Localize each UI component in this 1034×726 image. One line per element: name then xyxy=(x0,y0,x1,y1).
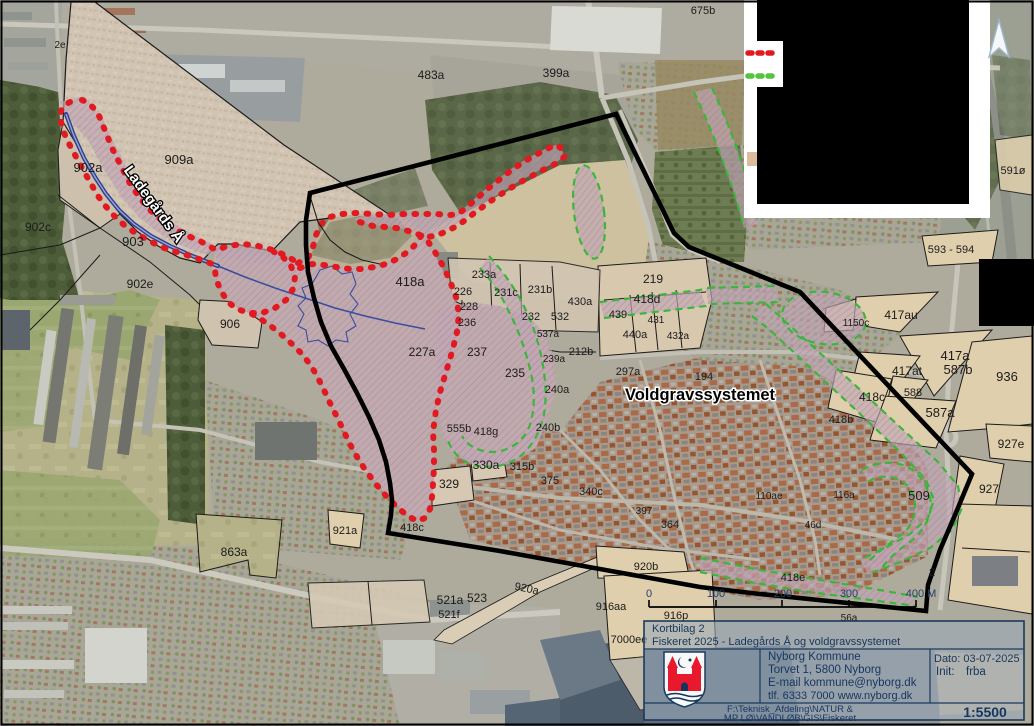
svg-text:236: 236 xyxy=(458,317,476,329)
svg-text:E-mail kommune@nyborg.dk: E-mail kommune@nyborg.dk xyxy=(768,677,917,689)
svg-text:418c: 418c xyxy=(859,390,885,404)
svg-text:440a: 440a xyxy=(623,329,648,341)
svg-text:417at: 417at xyxy=(892,364,923,378)
svg-text:521a: 521a xyxy=(437,593,464,607)
svg-text:235: 235 xyxy=(505,366,525,380)
svg-text:Fiskeret 2025 - Ladegårds Å og: Fiskeret 2025 - Ladegårds Å og voldgravs… xyxy=(652,635,900,648)
svg-text:523: 523 xyxy=(467,591,487,605)
svg-text:297a: 297a xyxy=(616,366,641,378)
svg-text:906: 906 xyxy=(220,317,240,331)
svg-text:587a: 587a xyxy=(926,405,956,420)
svg-text:397: 397 xyxy=(636,506,653,517)
svg-text:46d: 46d xyxy=(805,520,822,531)
svg-text:227a: 227a xyxy=(409,345,436,359)
svg-text:239a: 239a xyxy=(543,354,566,365)
svg-text:Voldgravssystemet: Voldgravssystemet xyxy=(625,386,776,404)
svg-text:frba: frba xyxy=(966,666,986,678)
svg-text:212b: 212b xyxy=(569,346,593,358)
svg-text:232: 232 xyxy=(522,311,540,323)
svg-text:418d: 418d xyxy=(634,292,661,306)
svg-text:1:5500: 1:5500 xyxy=(963,704,1007,720)
svg-text:194: 194 xyxy=(695,371,713,383)
svg-text:240b: 240b xyxy=(536,422,560,434)
svg-text:Torvet 1, 5800 Nyborg: Torvet 1, 5800 Nyborg xyxy=(768,664,881,676)
svg-text:417au: 417au xyxy=(884,308,917,322)
svg-text:2e: 2e xyxy=(54,40,66,51)
svg-text:Nyborg Kommune: Nyborg Kommune xyxy=(768,651,861,663)
svg-text:927: 927 xyxy=(979,482,999,496)
svg-text:588: 588 xyxy=(904,387,922,399)
svg-text:116a: 116a xyxy=(833,490,855,501)
svg-text:0: 0 xyxy=(646,588,652,600)
svg-text:110ae: 110ae xyxy=(755,491,783,502)
svg-text:2: 2 xyxy=(929,567,935,579)
svg-text:593 - 594: 593 - 594 xyxy=(928,244,974,256)
svg-text:418c: 418c xyxy=(400,522,424,534)
svg-text:587b: 587b xyxy=(944,362,973,377)
svg-text:431: 431 xyxy=(648,315,665,326)
svg-text:228: 228 xyxy=(460,301,478,313)
svg-text:329: 329 xyxy=(439,477,459,491)
svg-text:315b: 315b xyxy=(510,461,534,473)
svg-text:375: 375 xyxy=(541,475,559,487)
svg-text:219: 219 xyxy=(643,272,663,286)
svg-text:237: 237 xyxy=(467,345,487,359)
svg-text:Init:: Init: xyxy=(936,666,955,678)
svg-text:430a: 430a xyxy=(568,296,593,308)
svg-text:418a: 418a xyxy=(396,274,426,289)
svg-text:231b: 231b xyxy=(528,284,552,296)
svg-text:902e: 902e xyxy=(127,277,154,291)
svg-text:916aa: 916aa xyxy=(596,601,627,613)
svg-text:7000ee: 7000ee xyxy=(611,634,648,646)
svg-text:921a: 921a xyxy=(333,525,358,537)
svg-text:200: 200 xyxy=(774,588,792,600)
svg-text:532: 532 xyxy=(551,311,569,323)
svg-text:MP LØ\VANDLØB\GIS\Fiskeret: MP LØ\VANDLØB\GIS\Fiskeret xyxy=(724,713,857,724)
svg-text:240a: 240a xyxy=(545,384,570,396)
svg-text:537a: 537a xyxy=(537,329,560,340)
svg-text:432a: 432a xyxy=(667,331,690,342)
svg-text:483a: 483a xyxy=(418,68,445,82)
svg-text:330a: 330a xyxy=(473,458,500,472)
svg-text:902c: 902c xyxy=(25,220,51,234)
svg-text:591ø: 591ø xyxy=(1000,165,1025,177)
svg-text:920b: 920b xyxy=(634,561,658,573)
svg-text:233a: 233a xyxy=(472,269,497,281)
svg-text:927e: 927e xyxy=(998,437,1025,451)
svg-text:399a: 399a xyxy=(543,66,570,80)
svg-text:903: 903 xyxy=(122,234,144,249)
svg-text:555b: 555b xyxy=(447,423,471,435)
svg-text:1150c: 1150c xyxy=(843,318,870,329)
svg-text:675b: 675b xyxy=(691,5,715,17)
svg-text:509: 509 xyxy=(908,488,930,503)
svg-text:400 M: 400 M xyxy=(906,588,937,600)
svg-text:300: 300 xyxy=(840,588,858,600)
svg-text:340c: 340c xyxy=(579,486,603,498)
svg-text:521f: 521f xyxy=(438,609,460,621)
svg-text:439: 439 xyxy=(609,309,627,321)
svg-text:364: 364 xyxy=(661,519,679,531)
svg-text:Kortbilag 2: Kortbilag 2 xyxy=(652,623,705,635)
svg-text:tlf. 6333 7000 www.nyborg.dk: tlf. 6333 7000 www.nyborg.dk xyxy=(768,690,913,702)
svg-text:417a: 417a xyxy=(941,348,971,363)
svg-text:418b: 418b xyxy=(829,414,853,426)
svg-text:418g: 418g xyxy=(474,426,498,438)
svg-text:418e: 418e xyxy=(781,572,805,584)
svg-text:100: 100 xyxy=(707,588,725,600)
svg-text:226: 226 xyxy=(454,286,472,298)
svg-text:936: 936 xyxy=(996,369,1018,384)
svg-text:Dato: 03-07-2025: Dato: 03-07-2025 xyxy=(934,653,1020,665)
svg-text:863a: 863a xyxy=(221,545,248,559)
svg-text:231c: 231c xyxy=(494,287,518,299)
svg-text:902a: 902a xyxy=(74,160,104,175)
svg-text:909a: 909a xyxy=(165,152,195,167)
